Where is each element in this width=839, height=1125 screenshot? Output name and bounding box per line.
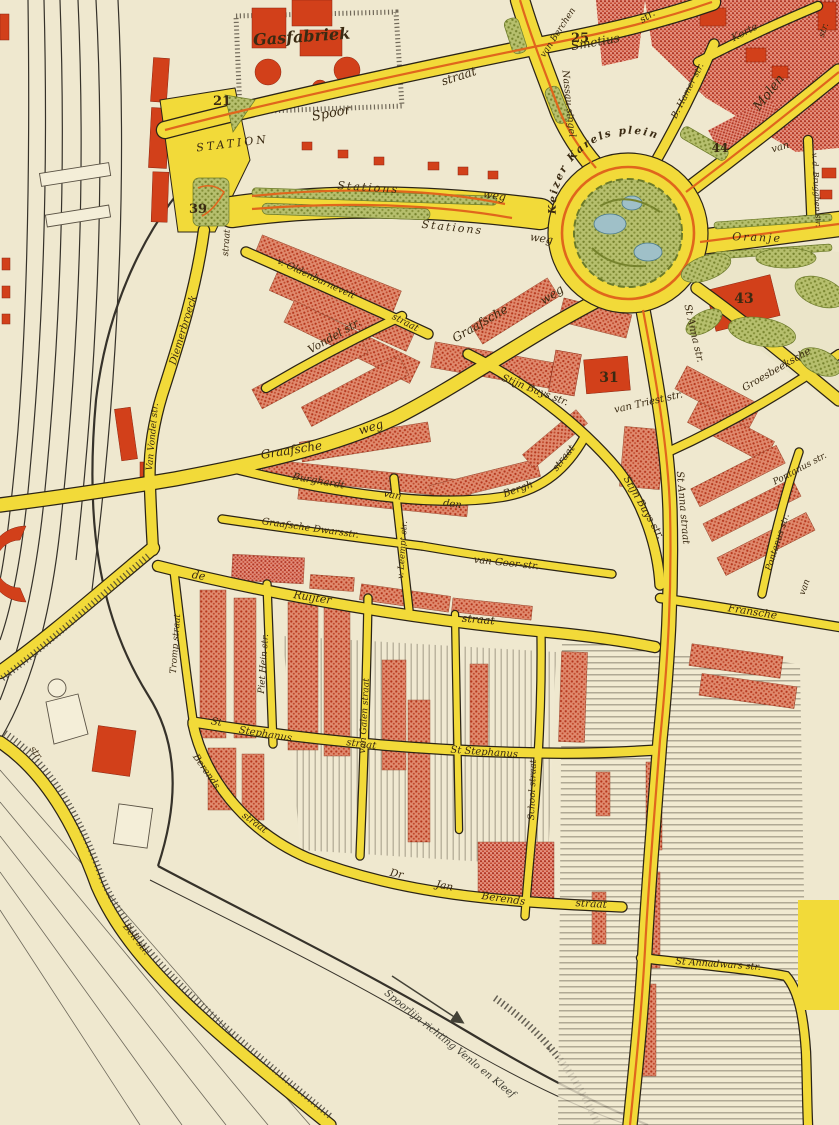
- street-label: School straat: [527, 759, 539, 820]
- plot-number: 44: [712, 141, 729, 155]
- plot-number: 43: [734, 291, 753, 307]
- street-label: straat: [221, 229, 233, 257]
- street-label: de: [191, 568, 207, 583]
- roundabout-keizer-karelsplein: [548, 153, 708, 313]
- gas-holder: [255, 59, 281, 85]
- street-label: straat: [575, 897, 608, 911]
- city-map-svg: GasfabriekSTATIONSpoorstraatvan BerchenS…: [0, 0, 839, 1125]
- plot-number: 25: [571, 31, 589, 46]
- plot-number: 31: [599, 370, 618, 386]
- plot-number: 21: [213, 94, 231, 109]
- street-label: Oranje: [732, 230, 782, 245]
- city-map: GasfabriekSTATIONSpoorstraatvan BerchenS…: [0, 0, 839, 1125]
- plot-number: 39: [189, 202, 207, 217]
